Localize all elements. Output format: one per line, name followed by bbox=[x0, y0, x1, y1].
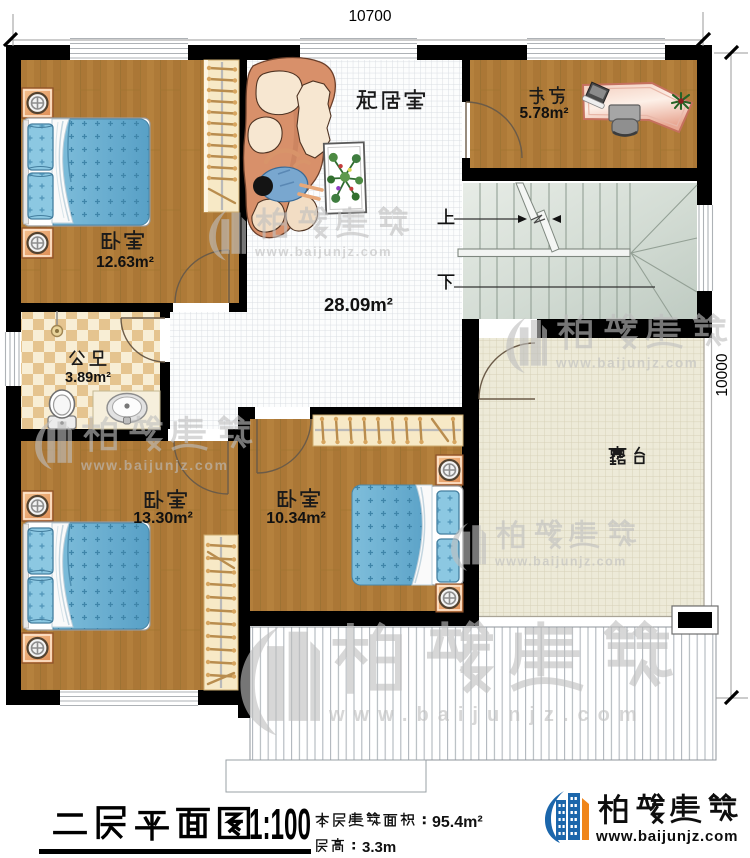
svg-text:10000: 10000 bbox=[714, 353, 731, 396]
svg-text:10700: 10700 bbox=[348, 8, 391, 25]
svg-text:www.baijunjz.com: www.baijunjz.com bbox=[494, 555, 627, 569]
svg-text:13.30m²: 13.30m² bbox=[133, 510, 193, 527]
svg-text:10.34m²: 10.34m² bbox=[266, 510, 326, 527]
svg-text:3.3m: 3.3m bbox=[362, 839, 396, 856]
svg-text:3.89m²: 3.89m² bbox=[65, 370, 111, 386]
svg-text:12.63m²: 12.63m² bbox=[96, 254, 154, 271]
svg-text:www.baijunjz.com: www.baijunjz.com bbox=[595, 828, 738, 845]
svg-text:95.4m²: 95.4m² bbox=[432, 814, 483, 831]
svg-text:www.baijunjz.com: www.baijunjz.com bbox=[328, 704, 646, 726]
svg-text:www.baijunjz.com: www.baijunjz.com bbox=[555, 356, 698, 371]
svg-text:www.baijunjz.com: www.baijunjz.com bbox=[254, 244, 392, 259]
svg-text:www.baijunjz.com: www.baijunjz.com bbox=[80, 457, 229, 473]
svg-text:28.09m²: 28.09m² bbox=[324, 294, 393, 315]
svg-text:1:100: 1:100 bbox=[249, 800, 311, 849]
svg-text:5.78m²: 5.78m² bbox=[519, 105, 568, 122]
